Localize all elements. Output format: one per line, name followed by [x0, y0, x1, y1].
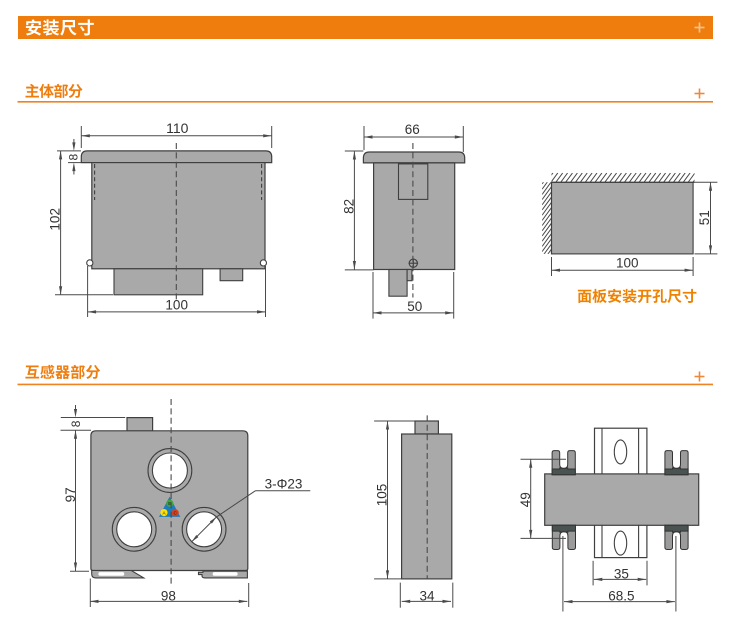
svg-text:51: 51	[697, 210, 712, 225]
svg-text:98: 98	[161, 588, 176, 603]
svg-text:66: 66	[405, 122, 420, 137]
svg-text:82: 82	[341, 199, 356, 214]
svg-text:34: 34	[419, 588, 435, 603]
svg-text:100: 100	[616, 256, 639, 271]
svg-text:50: 50	[407, 299, 422, 314]
svg-text:110: 110	[166, 120, 189, 136]
svg-text:49: 49	[518, 492, 533, 507]
svg-text:35: 35	[614, 566, 629, 581]
svg-text:8: 8	[66, 153, 80, 160]
svg-text:102: 102	[48, 208, 63, 231]
svg-text:105: 105	[374, 484, 389, 507]
svg-text:3-Φ23: 3-Φ23	[265, 477, 303, 492]
svg-text:8: 8	[69, 420, 83, 427]
svg-text:97: 97	[63, 487, 78, 502]
svg-text:100: 100	[165, 298, 188, 313]
svg-text:68.5: 68.5	[608, 588, 634, 603]
